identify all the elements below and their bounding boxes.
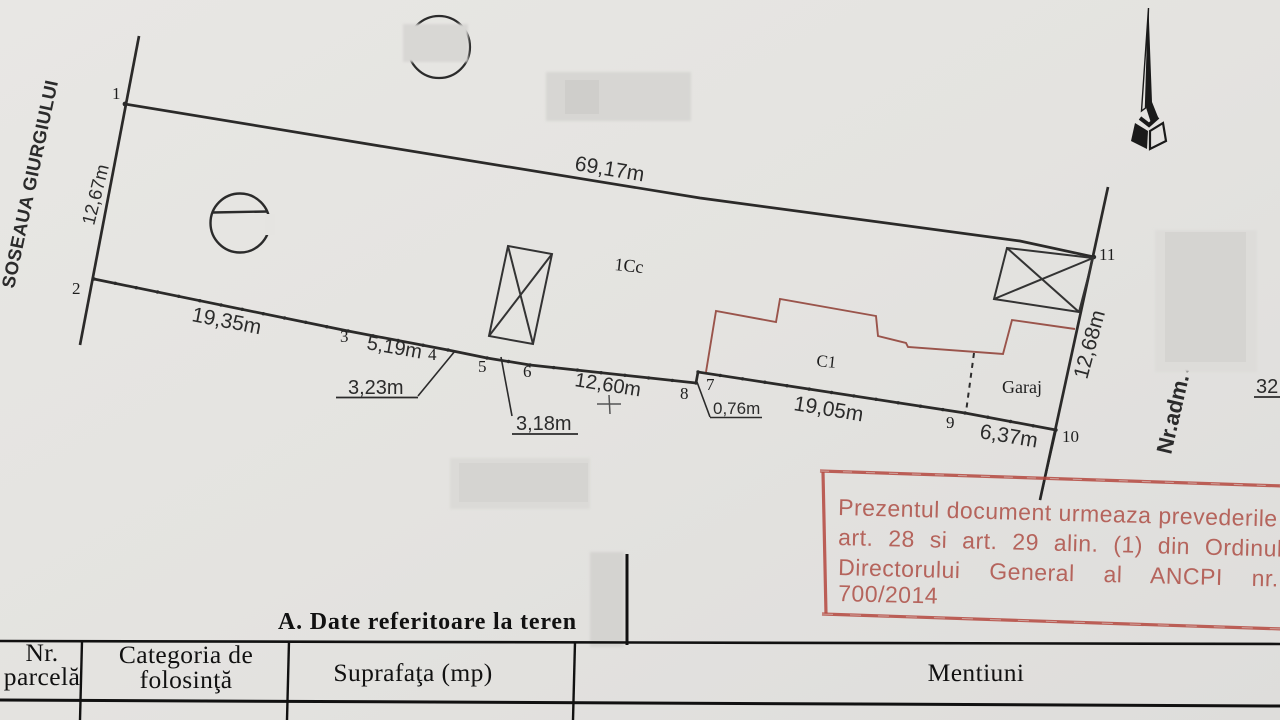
svg-text:0,76m: 0,76m [713, 399, 760, 418]
svg-text:5: 5 [478, 357, 487, 376]
svg-text:6: 6 [523, 362, 532, 381]
svg-text:2: 2 [72, 279, 81, 298]
svg-text:A. Date referitoare la teren: A. Date referitoare la teren [278, 609, 577, 635]
svg-text:32: 32 [1256, 376, 1278, 398]
svg-text:Mentiuni: Mentiuni [928, 658, 1025, 687]
svg-text:8: 8 [680, 384, 689, 403]
svg-text:11: 11 [1099, 245, 1115, 264]
svg-text:7: 7 [706, 375, 715, 394]
svg-text:3: 3 [340, 327, 349, 346]
svg-text:parcelă: parcelă [4, 662, 80, 691]
svg-text:folosinţă: folosinţă [140, 665, 233, 694]
svg-text:700/2014: 700/2014 [838, 580, 939, 609]
svg-text:9: 9 [946, 413, 955, 432]
svg-text:10: 10 [1062, 427, 1079, 446]
svg-text:1Cc: 1Cc [614, 254, 645, 277]
svg-text:3,23m: 3,23m [348, 377, 404, 399]
svg-text:Suprafaţa (mp): Suprafaţa (mp) [333, 658, 492, 687]
svg-text:Garaj: Garaj [1002, 377, 1042, 397]
svg-text:C1: C1 [816, 351, 838, 372]
svg-text:4: 4 [428, 345, 437, 364]
svg-text:3,18m: 3,18m [516, 413, 572, 435]
svg-text:1: 1 [112, 84, 121, 103]
